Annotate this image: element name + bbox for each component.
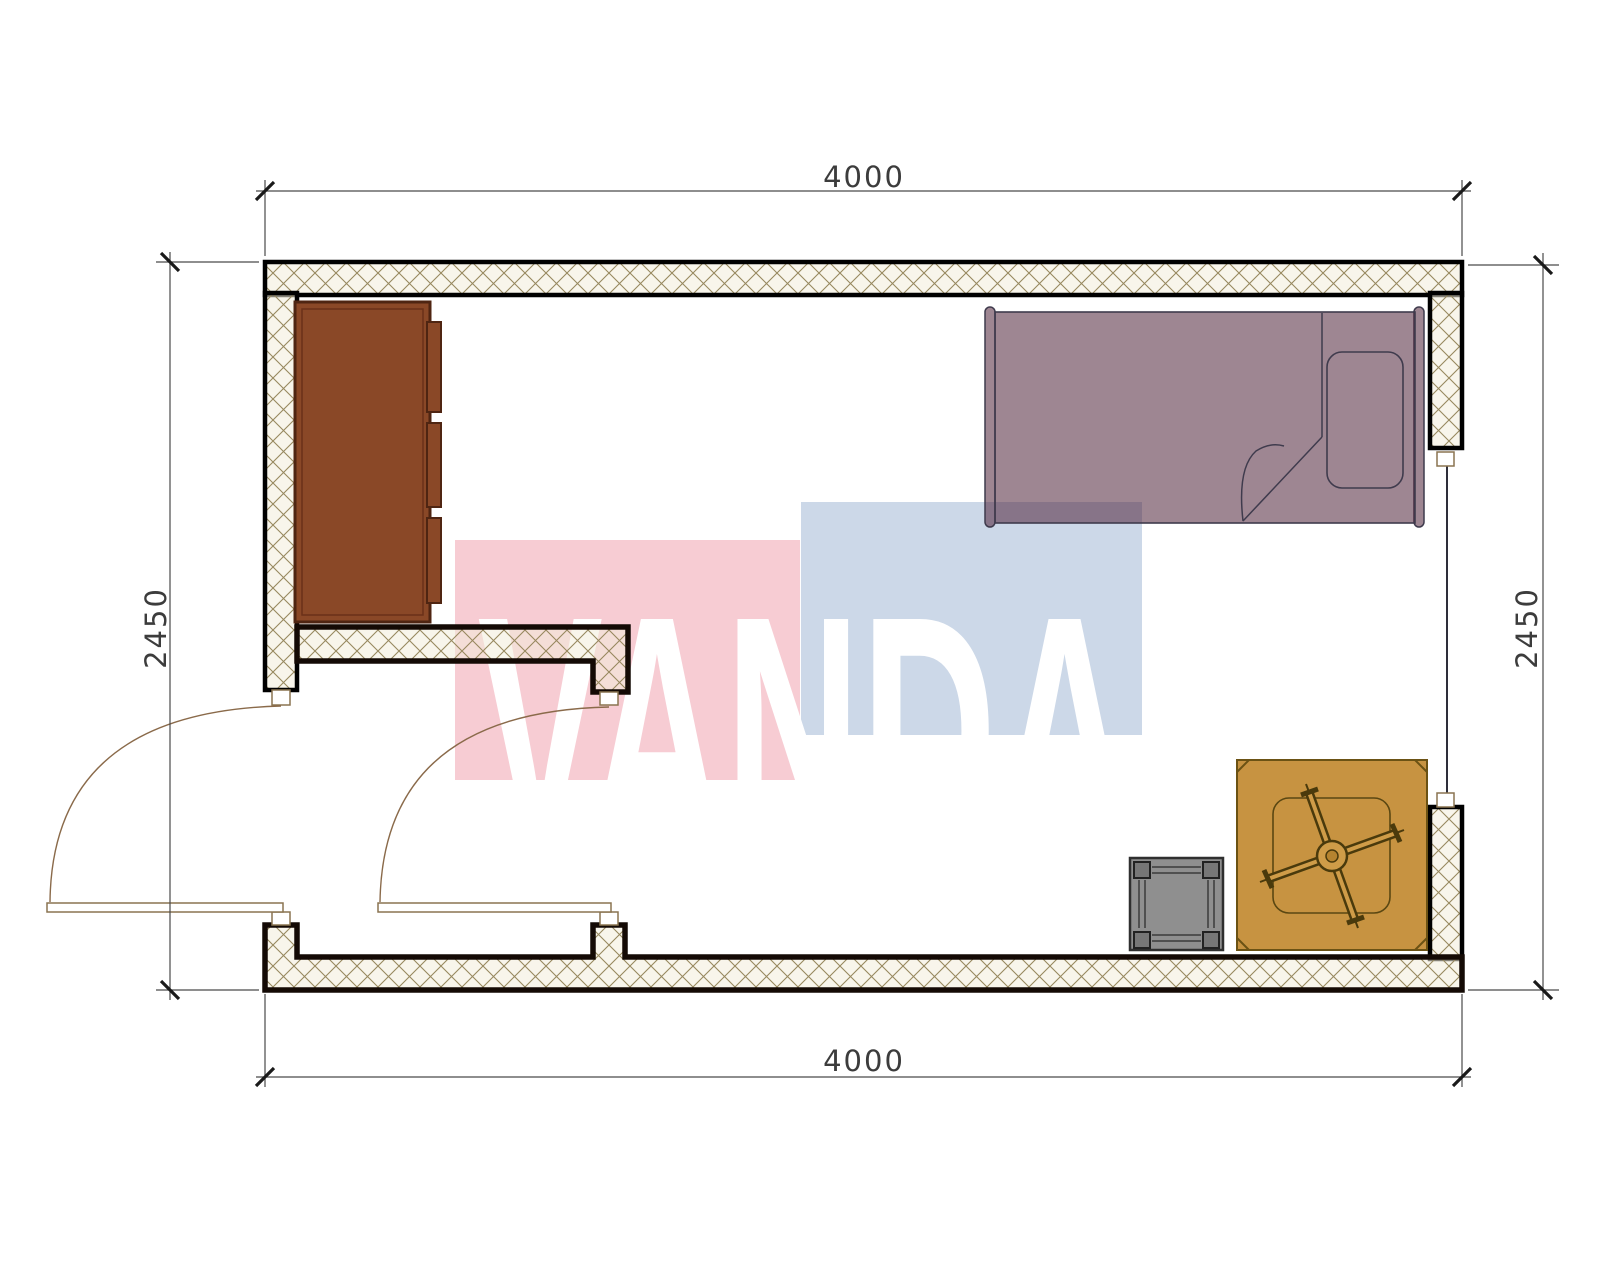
wardrobe-body: [295, 302, 430, 622]
desk-chair: [1237, 760, 1427, 950]
wall-right-lower: [1430, 807, 1462, 959]
floor-plan-canvas: VANDA: [0, 0, 1600, 1280]
door-jamb: [600, 912, 618, 925]
bed-mattress: [995, 312, 1415, 523]
stool: [1130, 858, 1223, 950]
window-jamb-top: [1437, 452, 1454, 466]
door-jamb: [600, 692, 618, 705]
wardrobe: [295, 302, 441, 622]
floor-plan-drawing: VANDA: [0, 0, 1600, 1280]
wardrobe-door-front: [427, 322, 441, 412]
door-leaf-inner: [378, 903, 611, 912]
watermark: VANDA: [455, 502, 1142, 916]
door-swing-arc-entry: [50, 706, 281, 902]
door-leaf-entry: [47, 903, 283, 912]
dimension-label-right: 2450: [1510, 587, 1544, 669]
door-jamb: [272, 912, 290, 925]
wall-right-upper: [1430, 293, 1462, 448]
watermark-text: VANDA: [478, 547, 1133, 916]
window-jamb-bottom: [1437, 793, 1454, 807]
dimension-label-bottom: 4000: [823, 1044, 905, 1078]
wall-left: [265, 293, 297, 690]
window: [1437, 452, 1454, 807]
bed-footboard: [985, 307, 995, 527]
wall-top: [265, 262, 1462, 295]
wardrobe-door-front: [427, 518, 441, 603]
dimension-label-left: 2450: [139, 587, 173, 669]
door-jamb: [272, 690, 290, 705]
stool-leg: [1203, 862, 1219, 878]
wardrobe-door-front: [427, 423, 441, 507]
stool-leg: [1134, 862, 1150, 878]
dimension-label-top: 4000: [823, 160, 905, 194]
stool-leg: [1134, 932, 1150, 948]
stool-leg: [1203, 932, 1219, 948]
bed: [985, 307, 1424, 527]
